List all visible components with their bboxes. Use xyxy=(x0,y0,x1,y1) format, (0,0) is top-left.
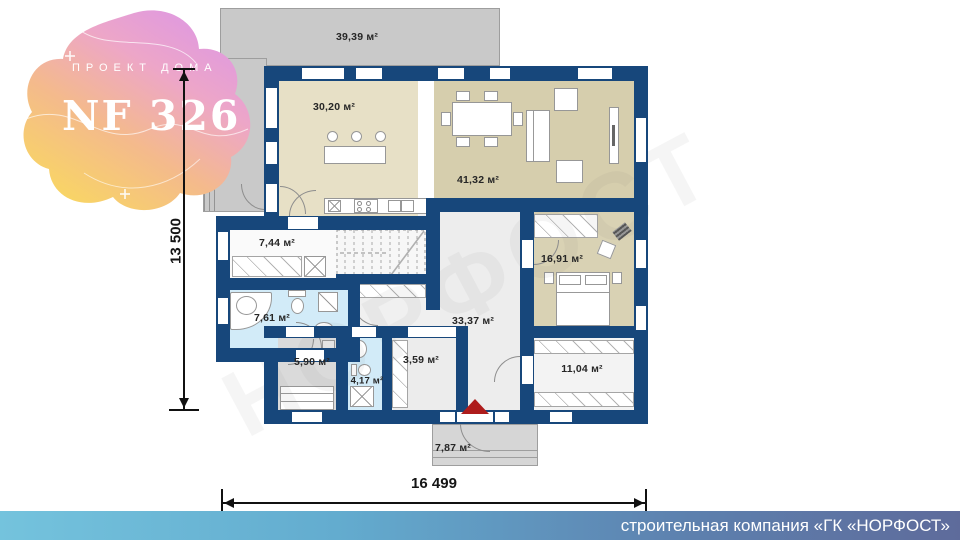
wall-segment xyxy=(382,326,392,424)
toilet-tank xyxy=(288,290,306,297)
room-bathroom-label: 7,61 м² xyxy=(254,312,290,324)
logo-block: ПРОЕКТ ДОМА NF 326 xyxy=(18,0,262,212)
armchair xyxy=(554,88,578,111)
window-opening xyxy=(490,68,510,79)
wardrobe xyxy=(392,340,408,408)
sauna-bench xyxy=(280,386,334,410)
room-dressing-label: 11,04 м² xyxy=(561,363,602,375)
toilet-tank xyxy=(351,364,357,376)
room-wc-label: 4,17 м² xyxy=(351,376,384,387)
logo-kicker: ПРОЕКТ ДОМА xyxy=(72,62,218,74)
window-opening xyxy=(495,412,509,422)
dimension-arrow-right xyxy=(634,498,644,508)
wall-segment xyxy=(426,198,648,212)
dining-chair xyxy=(484,137,498,147)
blanket-line xyxy=(557,292,609,293)
bar-stool xyxy=(351,131,362,142)
room-sauna-label: 5,90 м² xyxy=(294,356,330,368)
window-opening xyxy=(636,118,646,162)
window-opening xyxy=(218,232,228,260)
double-sink-icon xyxy=(388,200,401,212)
wall-segment xyxy=(426,198,440,310)
wardrobe xyxy=(534,214,598,238)
dimension-arrow-left xyxy=(224,498,234,508)
nightstand xyxy=(612,272,622,284)
room-porch-label: 7,87 м² xyxy=(435,442,471,454)
armchair xyxy=(556,160,583,183)
nightstand xyxy=(544,272,554,284)
door-opening xyxy=(522,356,533,384)
door-opening xyxy=(266,184,277,212)
pillow xyxy=(559,275,581,285)
wall-segment xyxy=(336,326,348,424)
wardrobe xyxy=(534,340,634,354)
door-opening xyxy=(286,327,314,337)
double-sink-icon xyxy=(401,200,414,212)
horizontal-dimension-label: 16 499 xyxy=(411,475,457,492)
door-opening xyxy=(288,217,318,229)
washing-machine-icon xyxy=(304,256,326,277)
window-opening xyxy=(292,412,322,422)
room-hall-label: 33,37 м² xyxy=(452,315,494,327)
room-terrace-label: 39,39 м² xyxy=(336,31,378,43)
window-opening xyxy=(266,142,277,164)
window-opening xyxy=(356,68,382,79)
toilet-bowl xyxy=(358,364,371,376)
toilet-bowl xyxy=(291,298,304,314)
door-opening xyxy=(408,327,456,337)
entrance-marker-icon xyxy=(461,399,489,414)
bar-stool xyxy=(327,131,338,142)
wall-segment xyxy=(336,274,426,284)
dimension-arrow-up xyxy=(179,71,189,81)
porch-step-line xyxy=(433,457,537,458)
window-opening xyxy=(578,68,612,79)
sofa xyxy=(526,110,550,162)
room-hallway-label: 7,44 м² xyxy=(259,237,295,249)
dining-chair xyxy=(456,91,470,101)
tv-screen xyxy=(612,125,615,146)
shower-cabin xyxy=(350,386,374,407)
wall-segment xyxy=(216,216,440,230)
bar-stool xyxy=(375,131,386,142)
dining-chair xyxy=(441,112,451,126)
door-opening xyxy=(352,327,376,337)
vertical-dimension-label: 13 500 xyxy=(168,218,185,264)
dining-chair xyxy=(513,112,523,126)
company-name: строительная компания «ГК «НОРФОСТ» xyxy=(621,516,950,535)
room-bedroom-label: 16,91 м² xyxy=(541,253,583,265)
room-corridor-label: 3,59 м² xyxy=(403,354,439,366)
staircase xyxy=(336,229,426,276)
wall-segment xyxy=(520,326,648,338)
shower-cabin xyxy=(318,292,338,312)
window-opening xyxy=(636,306,646,330)
window-opening xyxy=(266,88,277,128)
window-opening xyxy=(302,68,344,79)
kitchen-living-opening xyxy=(418,78,434,200)
kitchen-sink-icon xyxy=(328,200,341,212)
wardrobe xyxy=(232,256,302,277)
room-living-label: 41,32 м² xyxy=(457,174,499,186)
window-opening xyxy=(636,240,646,268)
kitchen-island xyxy=(324,146,386,164)
room-kitchen-label: 30,20 м² xyxy=(313,101,355,113)
logo-title: NF 326 xyxy=(62,92,240,140)
floor-plan-page: НОРФОСТ ПРОЕКТ ДОМА NF 326 xyxy=(0,0,960,540)
pillow xyxy=(585,275,607,285)
dining-chair xyxy=(484,91,498,101)
door-opening xyxy=(522,240,533,268)
wardrobe xyxy=(534,392,634,407)
dining-table xyxy=(452,102,512,136)
dimension-arrow-down xyxy=(179,398,189,408)
window-opening xyxy=(438,68,464,79)
dining-chair xyxy=(456,137,470,147)
exterior-notch xyxy=(216,362,264,424)
window-opening xyxy=(218,298,228,324)
footer-banner: строительная компания «ГК «НОРФОСТ» xyxy=(0,511,960,540)
window-opening xyxy=(550,412,572,422)
window-opening xyxy=(440,412,455,422)
